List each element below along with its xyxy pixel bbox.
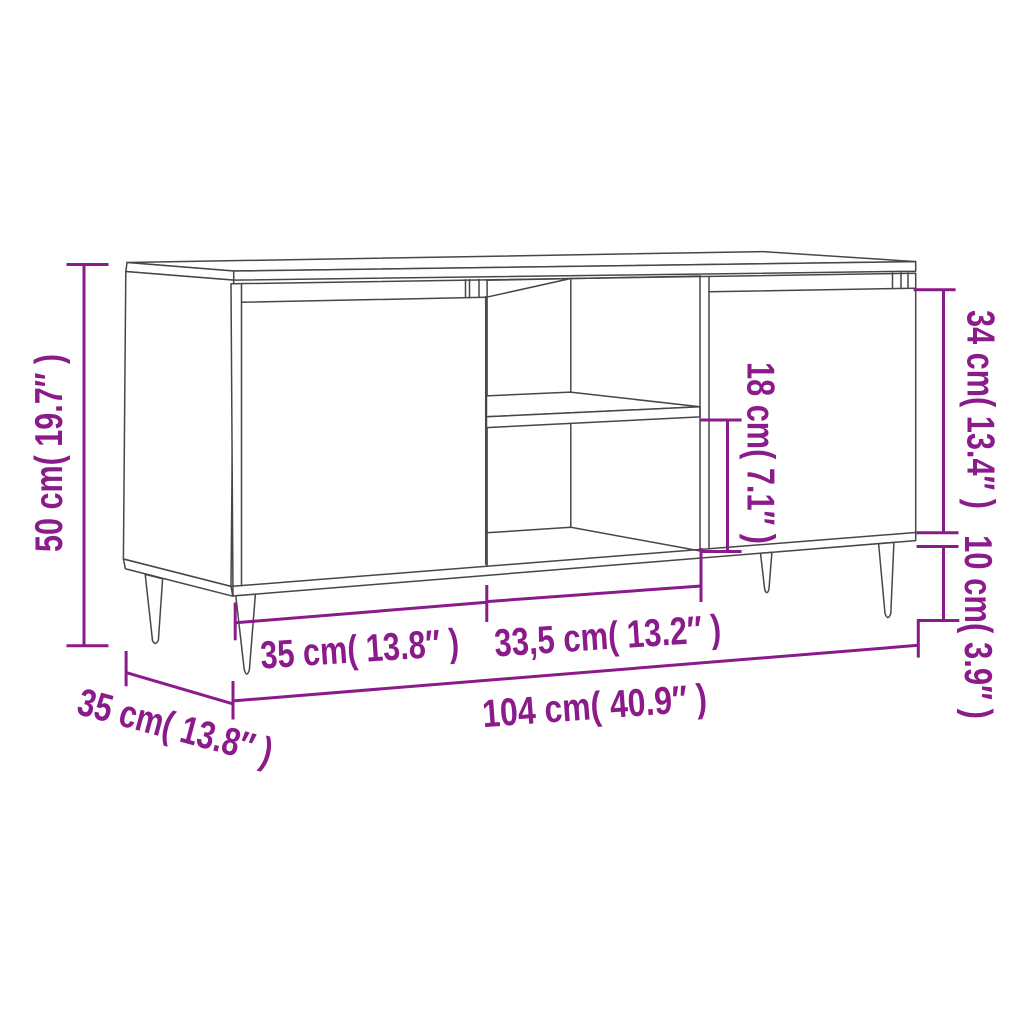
svg-text:34 cm( 13.4″ ): 34 cm( 13.4″ )	[959, 310, 1002, 509]
svg-text:18 cm( 7.1″ ): 18 cm( 7.1″ )	[739, 362, 782, 544]
svg-text:50 cm( 19.7″ ): 50 cm( 19.7″ )	[28, 354, 71, 552]
svg-text:10 cm( 3.9″ ): 10 cm( 3.9″ )	[956, 535, 999, 719]
